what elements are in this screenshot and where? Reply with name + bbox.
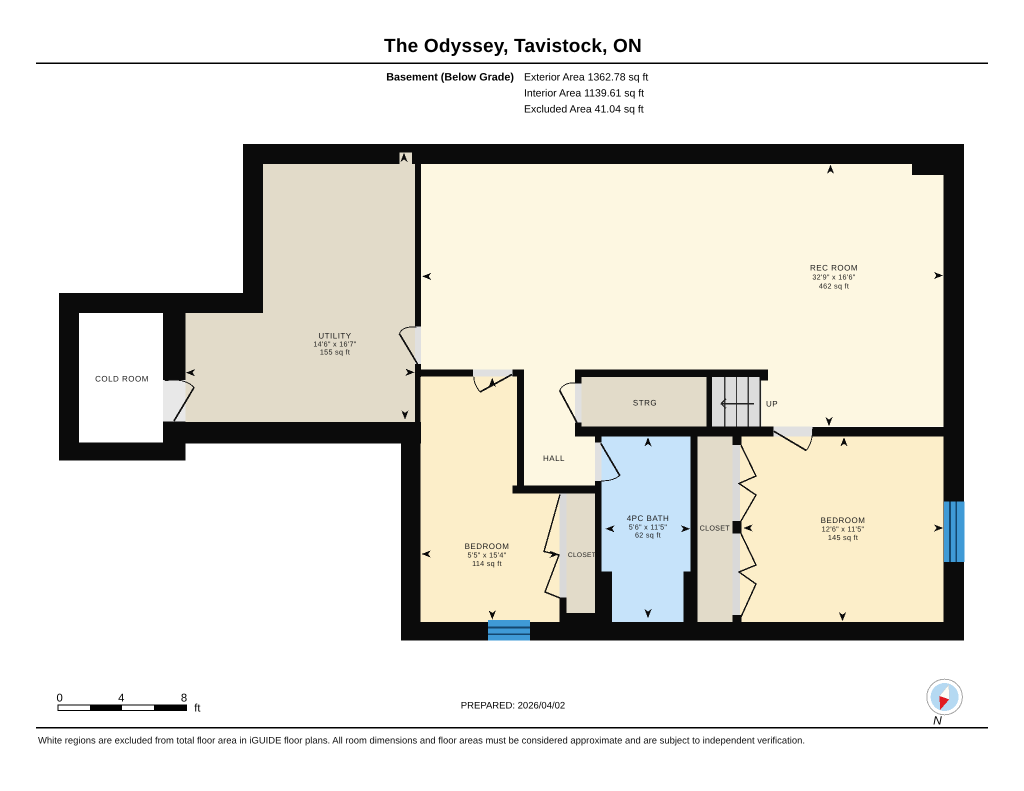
svg-text:Basement (Below Grade): Basement (Below Grade) xyxy=(386,72,514,84)
svg-text:HALL: HALL xyxy=(543,454,565,463)
svg-text:Excluded Area 41.04 sq ft: Excluded Area 41.04 sq ft xyxy=(524,104,644,116)
svg-text:STRG: STRG xyxy=(633,398,657,407)
svg-text:COLD ROOM: COLD ROOM xyxy=(95,374,149,383)
svg-text:8: 8 xyxy=(181,692,187,704)
svg-text:62 sq ft: 62 sq ft xyxy=(635,531,661,540)
svg-text:4: 4 xyxy=(118,692,124,704)
svg-text:Interior Area 1139.61 sq ft: Interior Area 1139.61 sq ft xyxy=(524,88,644,100)
svg-text:462 sq ft: 462 sq ft xyxy=(819,281,849,290)
svg-text:REC ROOM: REC ROOM xyxy=(810,263,858,272)
svg-text:UP: UP xyxy=(766,399,778,408)
svg-text:ft: ft xyxy=(194,703,200,715)
svg-text:32'9" x 16'6": 32'9" x 16'6" xyxy=(812,272,855,281)
svg-text:PREPARED: 2026/04/02: PREPARED: 2026/04/02 xyxy=(461,701,565,712)
svg-text:CLOSET: CLOSET xyxy=(568,552,596,559)
svg-text:Exterior Area 1362.78 sq ft: Exterior Area 1362.78 sq ft xyxy=(524,72,648,84)
svg-text:The Odyssey, Tavistock, ON: The Odyssey, Tavistock, ON xyxy=(384,36,642,57)
svg-text:0: 0 xyxy=(56,692,62,704)
svg-text:CLOSET: CLOSET xyxy=(700,524,731,533)
svg-text:145 sq ft: 145 sq ft xyxy=(828,533,858,542)
svg-text:N: N xyxy=(933,714,942,728)
svg-text:White regions are excluded fro: White regions are excluded from total fl… xyxy=(38,736,805,747)
svg-text:114 sq ft: 114 sq ft xyxy=(472,559,502,568)
svg-text:155 sq ft: 155 sq ft xyxy=(320,348,350,357)
